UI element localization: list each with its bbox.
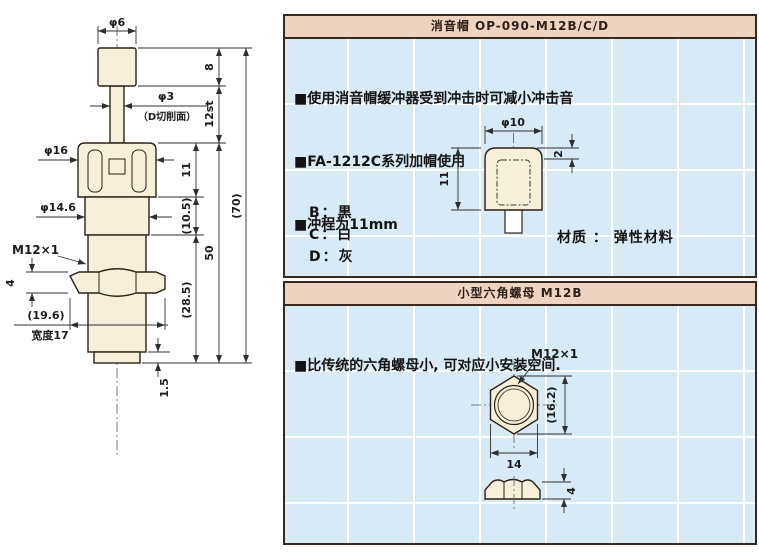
silencer-cap-panel: 消音帽 OP-090-M12B/C/D ■使用消音帽缓冲器受到冲击时可减小冲击音… (283, 14, 757, 278)
color-option-list: B：黒 C：白 D：灰 (309, 202, 355, 268)
dim-12st-label: 12st (203, 100, 216, 127)
hex-nut-panel-body: ■比传统的六角螺母小, 可对应小安装空间. M12×1 (285, 306, 755, 543)
dim-70-label: (70) (230, 193, 243, 218)
dim-cap-2-label: 2 (552, 150, 565, 158)
dim-10-5-label: (10.5) (180, 197, 193, 234)
dim-cap-11-label: 11 (438, 171, 451, 186)
dim-1-5-label: 1.5 (158, 378, 171, 398)
dim-phi10-label: φ10 (501, 116, 525, 129)
absorber-body (70, 48, 165, 363)
silencer-cap-panel-body: ■使用消音帽缓冲器受到冲击时可减小冲击音 ■FA-1212C系列加帽使用 ■冲程… (285, 39, 755, 276)
silencer-cap-panel-header: 消音帽 OP-090-M12B/C/D (285, 16, 755, 39)
width17-label: 宽度17 (30, 328, 68, 342)
dim-11-label: 11 (180, 162, 193, 177)
dim-phi14-6-label: φ14.6 (40, 201, 76, 214)
color-option: B：黒 (309, 202, 355, 224)
dim-phi3-label: φ3 (158, 90, 174, 103)
hex-nut-panel: 小型六角螺母 M12B ■比传统的六角螺母小, 可对应小安装空间. (283, 281, 757, 545)
nut-hexagon (491, 376, 538, 434)
dim-side-4: 4 (542, 468, 578, 513)
dim-nut-thread: M12×1 (518, 347, 578, 384)
color-option: C：白 (309, 224, 355, 246)
dim-thread: M12×1 (12, 243, 86, 264)
dim-side-4-label: 4 (565, 487, 578, 495)
shock-absorber-drawing: φ6 φ3 （D切削面） φ16 φ14.6 M12×1 (0, 0, 283, 470)
silencer-cap-panel-title: 消音帽 OP-090-M12B/C/D (431, 19, 609, 33)
dim-28-5-label: (28.5) (180, 281, 193, 318)
nut-thread-label: M12×1 (531, 347, 578, 361)
dim-phi3: φ3 （D切削面） (90, 90, 208, 123)
dim-19-6-label: (19.6) (27, 309, 64, 322)
catalog-page: φ6 φ3 （D切削面） φ16 φ14.6 M12×1 (0, 0, 759, 560)
hex-nut-side (70, 269, 165, 297)
silencer-cap-drawing: φ10 11 2 (285, 39, 755, 276)
dim-cap-2: 2 (537, 134, 579, 173)
dim-phi6-label: φ6 (109, 16, 126, 29)
dim-phi16-label: φ16 (44, 144, 68, 157)
dim-nut-4-label: 4 (4, 279, 17, 287)
dim-nut-4: 4 (4, 258, 68, 307)
cap-outline (485, 148, 542, 210)
material-note: 材质 ： 弹性材料 (557, 227, 674, 247)
dim-8-label: 8 (203, 63, 216, 71)
hex-nut-drawing: M12×1 (16.2) 14 (285, 306, 755, 544)
hex-nut-panel-title: 小型六角螺母 M12B (458, 286, 583, 300)
dim-14-label: 14 (506, 458, 522, 471)
dim-16-2-label: (16.2) (545, 386, 558, 423)
dim-50-label: 50 (203, 245, 216, 261)
cap-rod (505, 210, 522, 233)
d-cut-label: （D切削面） (138, 110, 196, 123)
nut-side-view (485, 480, 540, 500)
color-option: D：灰 (309, 246, 355, 268)
thread-label: M12×1 (12, 243, 59, 257)
hex-nut-panel-header: 小型六角螺母 M12B (285, 283, 755, 306)
dim-cap-11: 11 (438, 148, 481, 210)
